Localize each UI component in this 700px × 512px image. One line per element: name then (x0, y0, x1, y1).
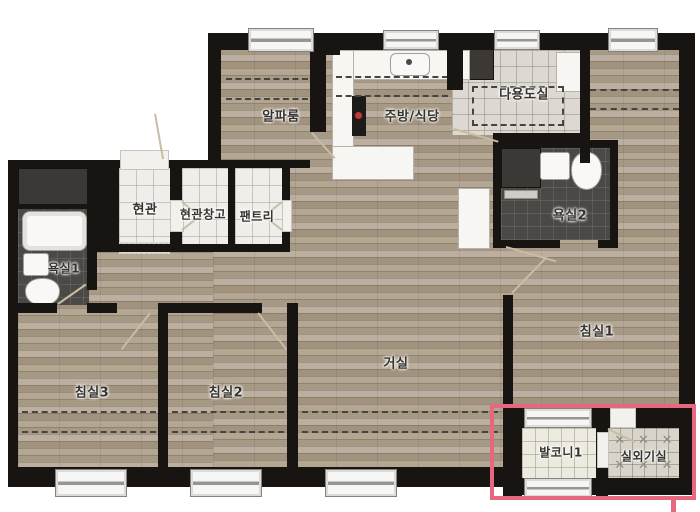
kitchen-faucet (406, 59, 412, 65)
wall-bathroom2-left (493, 140, 501, 248)
room-label-bedroom1: 침실1 (580, 321, 614, 340)
room-label-bedroom2: 침실2 (209, 382, 243, 401)
wall-alpha-left (208, 33, 221, 168)
wall-left (8, 160, 18, 487)
window-bedroom2 (190, 469, 262, 497)
wall-bathroom1-right-lower (87, 250, 97, 290)
floor-plan: ✕✕✕✕✕✕ (0, 0, 700, 512)
window-living-room (325, 469, 397, 497)
dashed-line (226, 98, 308, 100)
window-kitchen (383, 30, 439, 50)
dashed-line (172, 431, 284, 433)
highlight-box (490, 404, 696, 500)
wall-bathroom1-right (87, 168, 119, 250)
wall-bathroom2-bottom-a (493, 240, 560, 248)
dashed-line (226, 78, 308, 80)
dashed-line (172, 411, 284, 413)
bathroom2-shower-bar (504, 190, 538, 199)
window-alpha-room (248, 28, 314, 52)
wall-bedroom3-bedroom2 (158, 303, 168, 467)
room-label-entrance-storage: 현관창고 (180, 206, 226, 223)
wall-entrance-block-bottom (89, 244, 290, 252)
window-bedroom3 (55, 469, 127, 497)
bathroom1-sink (23, 253, 49, 276)
bathroom1-toilet (25, 278, 60, 306)
room-label-bathroom2: 욕실2 (553, 205, 587, 224)
kitchen-lower-counter (332, 146, 414, 180)
kitchen-island-cabinet (458, 188, 490, 249)
bathtub (22, 211, 87, 251)
wall-bathroom2-right (610, 140, 618, 248)
wall-storage-pantry (228, 168, 235, 250)
window-utility-room (494, 30, 540, 50)
kitchen-range-burner (355, 112, 362, 119)
dashed-line (22, 411, 156, 413)
pantry-door-gap (282, 200, 292, 232)
dashed-line (22, 431, 156, 433)
wall-bathroom2-bottom-b (598, 240, 618, 248)
wall-kitchen-utility-jog (447, 33, 463, 90)
wall-bedroom3-top-b (87, 303, 117, 313)
highlight-tick (671, 500, 676, 512)
wall-bathroom1-storage-divider (18, 204, 89, 209)
room-label-pantry: 팬트리 (240, 208, 275, 225)
dashed-line (336, 76, 448, 78)
dashed-line (336, 95, 448, 97)
room-label-living-room: 거실 (384, 353, 409, 372)
wall-bathroom2-top (493, 140, 618, 148)
wall-bedroom3-top-a (8, 303, 57, 313)
dashed-line (302, 411, 498, 413)
wall-alpha-right-top (310, 33, 340, 55)
bathroom1-storage (18, 168, 91, 206)
dashed-line (302, 431, 498, 433)
room-label-bathroom1: 욕실1 (48, 260, 80, 277)
room-label-kitchen-dining: 주방/식당 (384, 106, 439, 125)
bathroom2-sink (540, 152, 570, 180)
window-bedroom1 (608, 28, 658, 52)
bathroom2-storage (501, 148, 541, 188)
room-label-bedroom3: 침실3 (75, 382, 109, 401)
dashed-line (590, 108, 679, 110)
room-label-entrance: 현관 (133, 199, 158, 218)
room-label-alpha-room: 알파룸 (262, 106, 299, 125)
wall-bedroom2-right (287, 303, 298, 467)
wall-bedroom2-top (168, 303, 262, 313)
dashed-line (590, 89, 679, 91)
room-label-utility-room: 다용도실 (499, 84, 549, 103)
